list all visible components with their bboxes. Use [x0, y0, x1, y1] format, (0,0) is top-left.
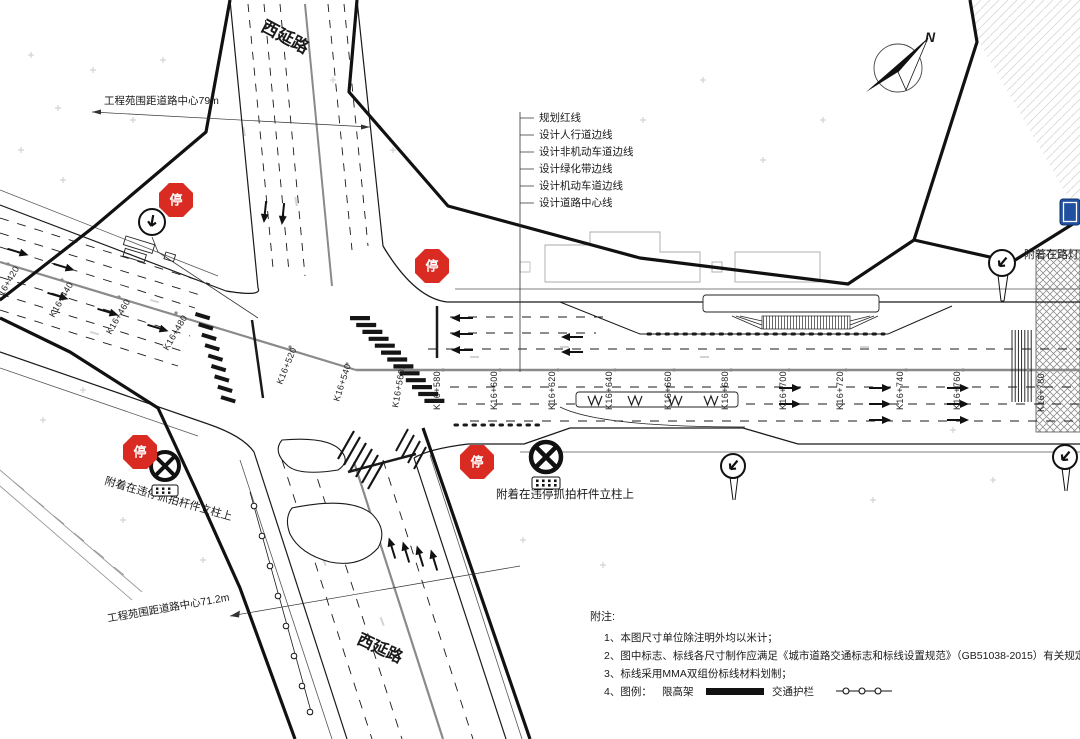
roads [0, 0, 1080, 739]
station-dots [6, 262, 1030, 371]
station-label: K16+760 [952, 371, 962, 410]
signal-mast-line [152, 237, 258, 318]
legend-line-label: 设计非机动车道边线 [539, 145, 634, 158]
station-label: K16+720 [835, 371, 845, 410]
setback-annotation-bottom: 工程苑围距道路中心71.2m [106, 591, 230, 625]
station-label: K16+420 [0, 264, 21, 303]
lane-arrows [6, 201, 969, 572]
east-road [356, 246, 1080, 458]
stop-stamp-char: 停 [169, 193, 182, 208]
road-name-bottom: 西延路 [354, 629, 406, 667]
station-label: K16+440 [47, 280, 75, 319]
direction-sign-icon [989, 250, 1015, 301]
stop-stamp-icon: 停 [159, 183, 193, 217]
station-label: K16+480 [161, 313, 189, 352]
direction-sign-icon [1053, 445, 1077, 491]
stop-stamp-icon: 停 [415, 249, 449, 283]
note-item: 2、图中标志、标线各尺寸制作应满足《城市道路交通标志和标线设置规范》（GB510… [604, 649, 1080, 662]
north-bus-platform [703, 295, 879, 329]
legend-line-label: 设计人行道边线 [539, 128, 613, 141]
station-label: K16+600 [489, 371, 499, 410]
station-label: K16+580 [432, 371, 442, 410]
plan-drawing: K16+420 K16+440 K16+460 K16+480 K16+520 … [0, 0, 1080, 739]
lamp-pole-annotation: 附着在路灯 [1024, 247, 1079, 261]
road-name-top: 西延路 [258, 16, 313, 58]
station-label: K16+740 [895, 371, 905, 410]
station-markers: K16+420 K16+440 K16+460 K16+480 K16+520 … [0, 262, 1046, 412]
south-bus-platform [560, 392, 745, 427]
legend-line-label: 设计道路中心线 [539, 196, 613, 209]
stop-stamp-char: 停 [470, 455, 483, 470]
annotations: 工程苑围距道路中心79m 工程苑围距道路中心71.2m 附着在违停抓拍杆件立柱上… [92, 16, 1079, 667]
setback-annotation-top: 工程苑围距道路中心79m [104, 94, 219, 107]
station-label: K16+520 [275, 346, 299, 386]
violation-pole-annotation-s: 附着在违停抓拍杆件立柱上 [496, 487, 634, 501]
legend-line-label: 设计绿化带边线 [539, 162, 613, 175]
west-approach-zebra [195, 312, 236, 403]
note-item: 4、图例： [604, 685, 652, 698]
cad-traffic-plan-sheet: K16+420 K16+440 K16+460 K16+480 K16+520 … [0, 0, 1080, 739]
south-approach-zebra [338, 429, 426, 489]
station-label: K16+560 [390, 368, 407, 408]
station-label: K16+780 [1036, 373, 1046, 412]
blue-guide-sign-icon [1060, 199, 1080, 225]
guardrail-symbol-icon [836, 688, 892, 694]
no-stopping-sign-icon [531, 442, 561, 489]
direction-sign-icon [139, 209, 165, 235]
compass: N [866, 29, 936, 92]
note-legend-height-limit-label: 限高架 [662, 685, 694, 698]
stop-stamp-icon: 停 [460, 445, 494, 479]
station-label: K16+680 [720, 371, 730, 410]
stop-stamp-icon: 停 [123, 435, 157, 469]
note-item: 1、本图尺寸单位除注明外均以米计； [604, 631, 778, 644]
station-label: K16+700 [778, 371, 788, 410]
notes-block: 附注: 1、本图尺寸单位除注明外均以米计； 2、图中标志、标线各尺寸制作应满足《… [590, 609, 1080, 698]
station-label: K16+620 [547, 371, 557, 410]
compass-north-label: N [925, 29, 936, 45]
note-item: 3、标线采用MMA双组份标线材料划制； [604, 667, 792, 680]
legend-line-label: 规划红线 [539, 111, 581, 124]
station-label: K16+540 [331, 362, 353, 402]
stop-stamp-char: 停 [425, 259, 438, 274]
direction-sign-icon [721, 454, 745, 500]
notes-header: 附注: [590, 609, 615, 623]
compass-needle-dark [866, 38, 928, 92]
height-limit-bar-icon [706, 688, 764, 695]
legend-line-label: 设计机动车道边线 [539, 179, 623, 192]
station-label: K16+660 [663, 371, 673, 410]
sign-board-icon [120, 236, 155, 264]
stop-stamp-char: 停 [133, 445, 146, 460]
east-end-ladder-zebra [1012, 330, 1031, 402]
station-label: K16+640 [604, 371, 614, 410]
note-legend-guardrail-label: 交通护栏 [772, 685, 814, 698]
